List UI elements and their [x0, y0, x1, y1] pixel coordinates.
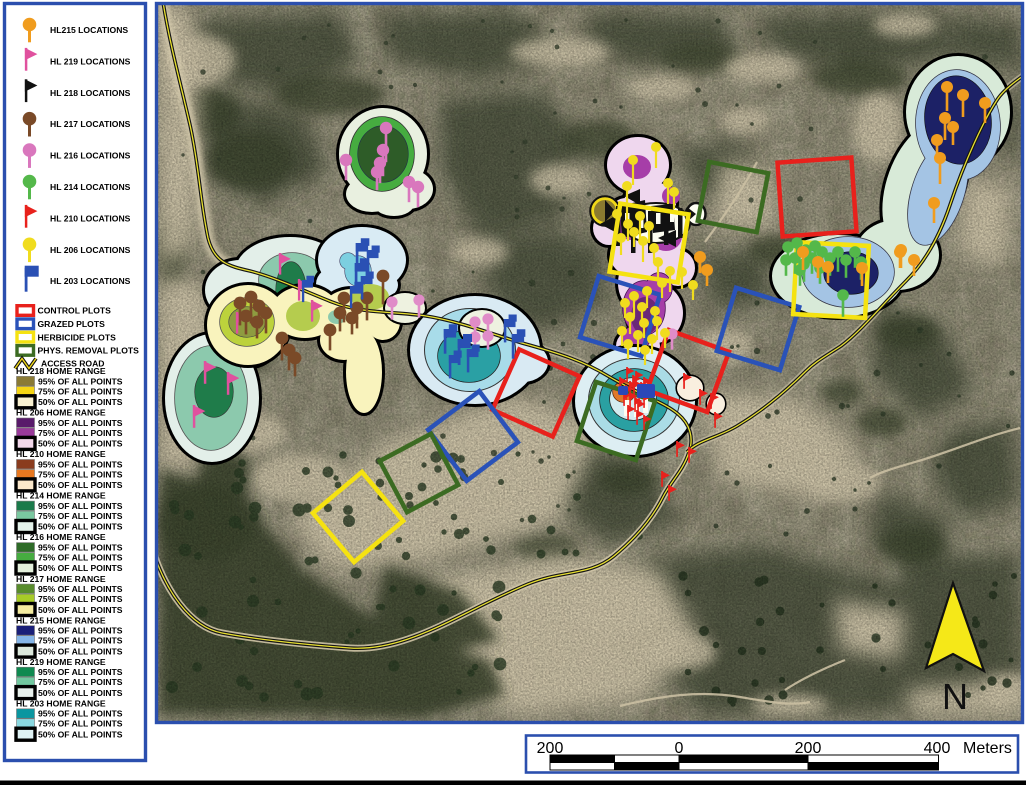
- svg-text:HL 218 HOME RANGE: HL 218 HOME RANGE: [16, 366, 106, 376]
- svg-text:50% OF ALL POINTS: 50% OF ALL POINTS: [38, 480, 123, 490]
- svg-text:75% OF ALL POINTS: 75% OF ALL POINTS: [38, 386, 123, 396]
- svg-text:75% OF ALL POINTS: 75% OF ALL POINTS: [38, 594, 123, 604]
- svg-text:75% OF ALL POINTS: 75% OF ALL POINTS: [38, 636, 123, 646]
- svg-text:95% OF ALL POINTS: 95% OF ALL POINTS: [38, 667, 123, 677]
- svg-text:75% OF ALL POINTS: 75% OF ALL POINTS: [38, 469, 123, 479]
- svg-text:HL 210 LOCATIONS: HL 210 LOCATIONS: [50, 213, 131, 223]
- svg-text:HERBICIDE PLOTS: HERBICIDE PLOTS: [38, 332, 117, 342]
- svg-text:50% OF ALL POINTS: 50% OF ALL POINTS: [38, 563, 123, 573]
- svg-text:400: 400: [924, 740, 951, 757]
- svg-text:50% OF ALL POINTS: 50% OF ALL POINTS: [38, 605, 123, 615]
- svg-text:75% OF ALL POINTS: 75% OF ALL POINTS: [38, 677, 123, 687]
- svg-text:95% OF ALL POINTS: 95% OF ALL POINTS: [38, 418, 123, 428]
- svg-text:HL 216 HOME RANGE: HL 216 HOME RANGE: [16, 532, 106, 542]
- svg-text:HL 206 HOME RANGE: HL 206 HOME RANGE: [16, 408, 106, 418]
- svg-text:HL 203 LOCATIONS: HL 203 LOCATIONS: [50, 276, 131, 286]
- svg-text:95% OF ALL POINTS: 95% OF ALL POINTS: [38, 584, 123, 594]
- svg-text:75% OF ALL POINTS: 75% OF ALL POINTS: [38, 553, 123, 563]
- svg-text:HL 215 HOME RANGE: HL 215 HOME RANGE: [16, 615, 106, 625]
- svg-text:N: N: [942, 676, 968, 717]
- svg-text:CONTROL PLOTS: CONTROL PLOTS: [38, 306, 112, 316]
- svg-text:HL 214 HOME RANGE: HL 214 HOME RANGE: [16, 491, 106, 501]
- svg-text:200: 200: [537, 740, 564, 757]
- svg-text:75% OF ALL POINTS: 75% OF ALL POINTS: [38, 719, 123, 729]
- svg-text:HL 218 LOCATIONS: HL 218 LOCATIONS: [50, 88, 131, 98]
- svg-text:HL 216 LOCATIONS: HL 216 LOCATIONS: [50, 151, 131, 161]
- svg-text:95% OF ALL POINTS: 95% OF ALL POINTS: [38, 709, 123, 719]
- svg-text:HL 219 HOME RANGE: HL 219 HOME RANGE: [16, 657, 106, 667]
- svg-text:HL 203 HOME RANGE: HL 203 HOME RANGE: [16, 698, 106, 708]
- svg-text:75% OF ALL POINTS: 75% OF ALL POINTS: [38, 511, 123, 521]
- svg-text:95% OF ALL POINTS: 95% OF ALL POINTS: [38, 626, 123, 636]
- svg-text:HL 210 HOME RANGE: HL 210 HOME RANGE: [16, 449, 106, 459]
- svg-text:95% OF ALL POINTS: 95% OF ALL POINTS: [38, 376, 123, 386]
- svg-text:75% OF ALL POINTS: 75% OF ALL POINTS: [38, 428, 123, 438]
- svg-text:95% OF ALL POINTS: 95% OF ALL POINTS: [38, 459, 123, 469]
- svg-text:50% OF ALL POINTS: 50% OF ALL POINTS: [38, 522, 123, 532]
- svg-text:Meters: Meters: [963, 740, 1012, 757]
- svg-text:50% OF ALL POINTS: 50% OF ALL POINTS: [38, 646, 123, 656]
- svg-text:PHYS. REMOVAL PLOTS: PHYS. REMOVAL PLOTS: [38, 346, 140, 356]
- svg-text:HL 217 HOME RANGE: HL 217 HOME RANGE: [16, 574, 106, 584]
- svg-text:95% OF ALL POINTS: 95% OF ALL POINTS: [38, 501, 123, 511]
- svg-text:HL 206 LOCATIONS: HL 206 LOCATIONS: [50, 245, 131, 255]
- svg-text:50% OF ALL POINTS: 50% OF ALL POINTS: [38, 397, 123, 407]
- svg-text:200: 200: [795, 740, 822, 757]
- svg-text:50% OF ALL POINTS: 50% OF ALL POINTS: [38, 439, 123, 449]
- svg-text:50% OF ALL POINTS: 50% OF ALL POINTS: [38, 729, 123, 739]
- svg-text:HL 217 LOCATIONS: HL 217 LOCATIONS: [50, 119, 131, 129]
- svg-text:HL 219 LOCATIONS: HL 219 LOCATIONS: [50, 56, 131, 66]
- svg-text:HL215 LOCATIONS: HL215 LOCATIONS: [50, 25, 128, 35]
- svg-text:0: 0: [675, 740, 684, 757]
- svg-text:50% OF ALL POINTS: 50% OF ALL POINTS: [38, 688, 123, 698]
- svg-text:95% OF ALL POINTS: 95% OF ALL POINTS: [38, 543, 123, 553]
- svg-text:HL 214 LOCATIONS: HL 214 LOCATIONS: [50, 182, 131, 192]
- svg-text:GRAZED PLOTS: GRAZED PLOTS: [38, 319, 106, 329]
